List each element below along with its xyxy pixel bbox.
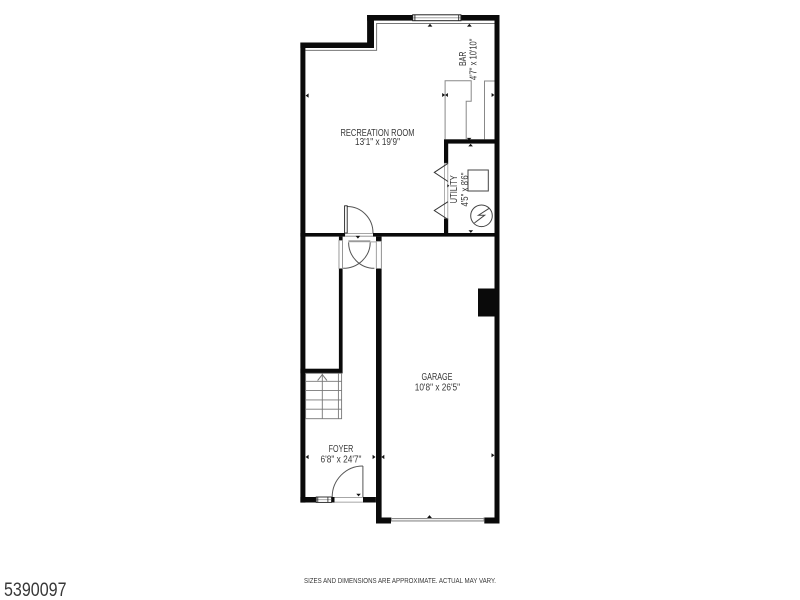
- svg-text:10'8" x 26'5": 10'8" x 26'5": [415, 382, 461, 393]
- svg-text:4'7" x 10'10": 4'7" x 10'10": [469, 38, 480, 80]
- svg-text:5390097: 5390097: [4, 580, 67, 600]
- svg-text:UTILITY: UTILITY: [449, 175, 460, 203]
- svg-text:FOYER: FOYER: [329, 444, 354, 455]
- svg-text:13'1" x 19'9": 13'1" x 19'9": [355, 137, 400, 148]
- svg-text:6'8" x 24'7": 6'8" x 24'7": [321, 455, 362, 466]
- svg-text:SIZES AND DIMENSIONS ARE APPRO: SIZES AND DIMENSIONS ARE APPROXIMATE. AC…: [304, 576, 496, 585]
- svg-text:4'5" x 8'6": 4'5" x 8'6": [460, 172, 471, 206]
- svg-text:BAR: BAR: [458, 52, 469, 67]
